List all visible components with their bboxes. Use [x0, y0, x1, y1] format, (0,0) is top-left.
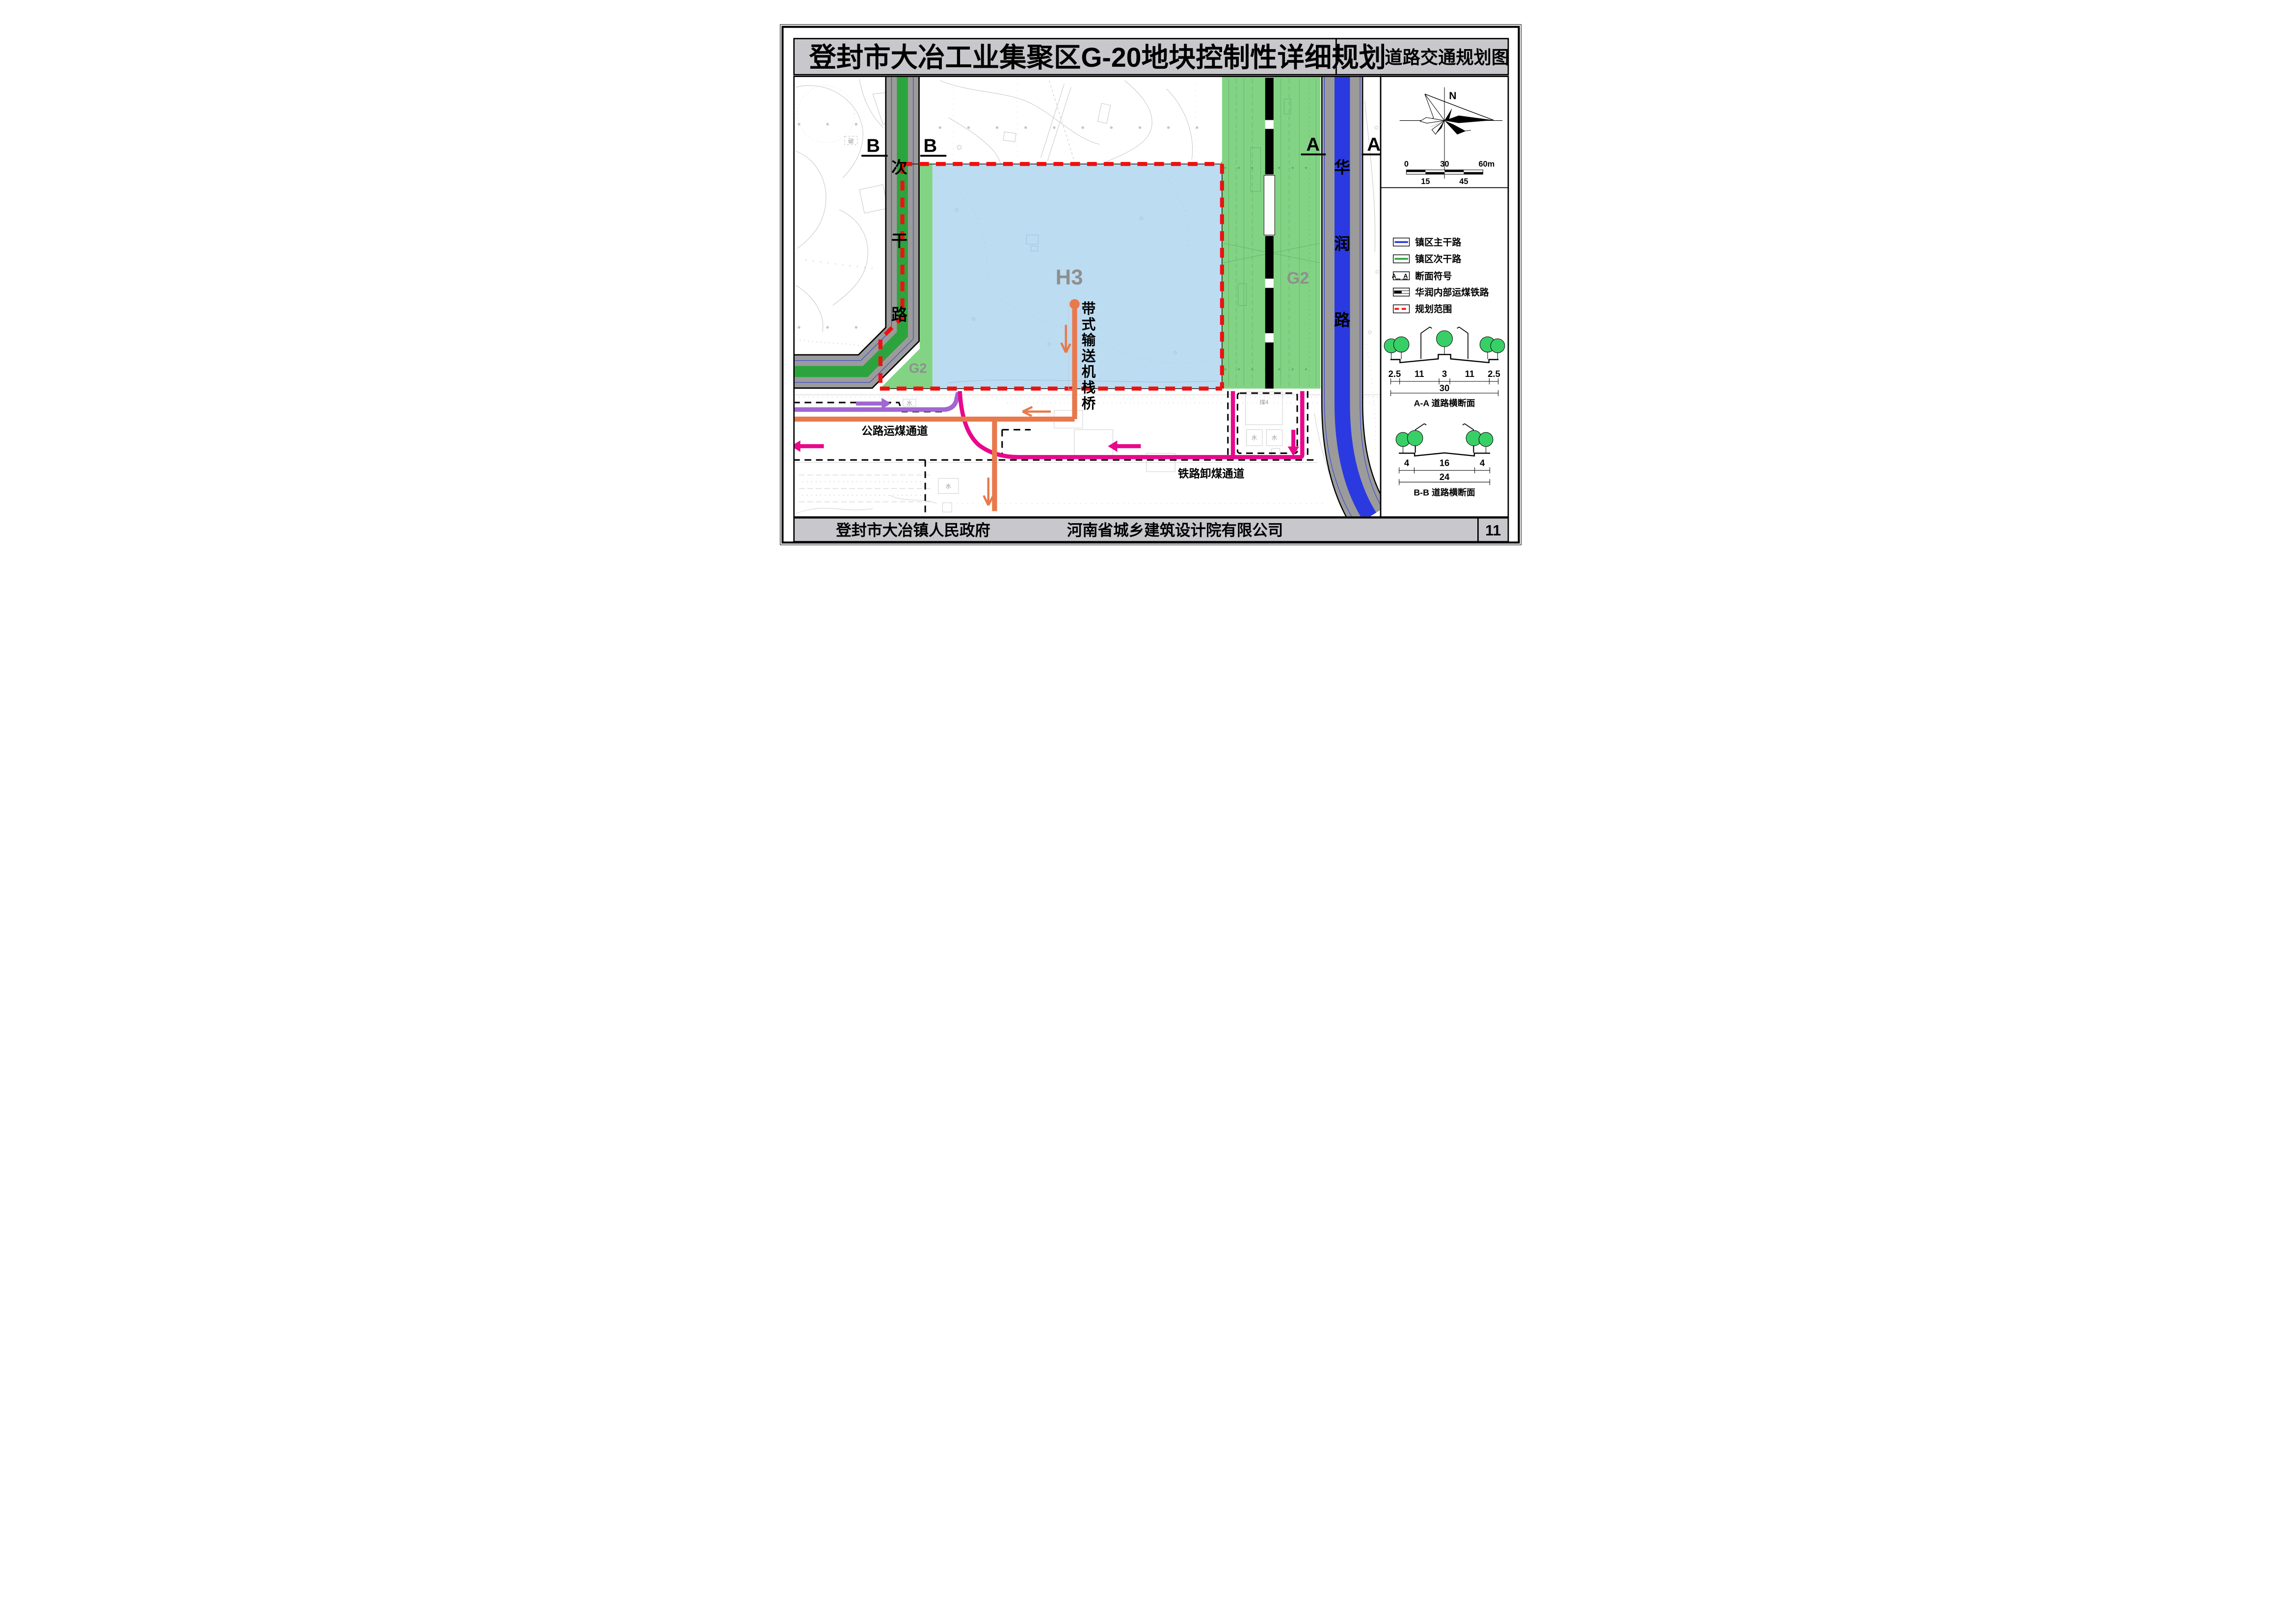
svg-text:带: 带 — [1082, 301, 1096, 317]
svg-text:断面符号: 断面符号 — [1415, 270, 1452, 281]
title-bar: 登封市大冶工业集聚区G-20地块控制性详细规划 道路交通规划图 — [794, 39, 1509, 75]
zone-label-g2-right: G2 — [1287, 269, 1309, 288]
svg-text:桥: 桥 — [1082, 396, 1096, 412]
legend-item-coal-railway: 华润内部运煤铁路 — [1393, 287, 1489, 297]
legend-item-main-road: 镇区主干路 — [1393, 237, 1462, 247]
svg-text:次: 次 — [891, 158, 908, 176]
railway-segment — [1265, 129, 1274, 175]
section-marker-b-left: B — [866, 135, 880, 157]
railway-segment — [1265, 288, 1274, 333]
svg-text:机: 机 — [1082, 365, 1096, 380]
svg-text:润: 润 — [1334, 235, 1350, 253]
coal-railway — [1264, 77, 1275, 389]
svg-text:4: 4 — [1480, 457, 1485, 468]
svg-text:输: 输 — [1082, 332, 1096, 348]
svg-text:水: 水 — [1252, 434, 1257, 441]
svg-text:11: 11 — [1415, 369, 1424, 379]
svg-text:镇区次干路: 镇区次干路 — [1415, 253, 1461, 264]
sidebar: N 0 30 — [1381, 77, 1508, 517]
svg-text:A A: A A — [1392, 273, 1411, 280]
footer-government: 登封市大冶镇人民政府 — [835, 521, 990, 539]
svg-text:破: 破 — [848, 137, 854, 144]
svg-text:水: 水 — [946, 483, 952, 490]
svg-text:11: 11 — [1465, 369, 1475, 379]
svg-text:45: 45 — [1459, 177, 1468, 186]
railway-segment — [1265, 343, 1274, 389]
plan-sheet: 登封市大冶工业集聚区G-20地块控制性详细规划 道路交通规划图 — [755, 0, 1541, 556]
rail-coal-label: 铁路卸煤通道 — [1178, 467, 1245, 480]
svg-text:水: 水 — [1272, 434, 1278, 441]
footer-design-institute: 河南省城乡建筑设计院有限公司 — [1067, 521, 1283, 539]
road-coal-label: 公路运煤通道 — [861, 425, 928, 437]
svg-text:30: 30 — [1440, 383, 1450, 393]
svg-text:栈: 栈 — [1082, 380, 1096, 396]
section-bb-caption: B-B 道路横断面 — [1414, 487, 1475, 498]
conveyor-label: 带 式 输 送 机 栈 桥 — [1082, 301, 1096, 412]
svg-text:煤4: 煤4 — [1259, 399, 1269, 406]
zone-label-g2-left: G2 — [909, 360, 927, 375]
railway-platform — [1264, 175, 1275, 235]
railway-segment — [1265, 236, 1274, 279]
svg-text:路: 路 — [891, 306, 908, 324]
railway-segment — [1265, 78, 1274, 120]
svg-text:3: 3 — [1442, 369, 1447, 379]
drawing-title: 道路交通规划图 — [1385, 47, 1509, 67]
svg-text:2.5: 2.5 — [1488, 369, 1500, 379]
svg-text:华: 华 — [1334, 158, 1350, 176]
svg-text:15: 15 — [1421, 177, 1430, 186]
svg-text:规划范围: 规划范围 — [1415, 303, 1452, 314]
svg-text:式: 式 — [1082, 317, 1096, 333]
svg-text:0: 0 — [1404, 160, 1409, 168]
compass-north-label: N — [1449, 90, 1456, 102]
zone-label-h3: H3 — [1056, 266, 1083, 290]
page-title: 登封市大冶工业集聚区G-20地块控制性详细规划 — [808, 42, 1386, 73]
legend-item-section-symbol: A A 断面符号 — [1392, 270, 1452, 281]
svg-text:华润内部运煤铁路: 华润内部运煤铁路 — [1415, 287, 1489, 297]
svg-text:路: 路 — [1334, 311, 1350, 329]
svg-text:4: 4 — [1404, 457, 1410, 468]
conveyor-head — [1069, 299, 1080, 309]
footer-bar: 登封市大冶镇人民政府 河南省城乡建筑设计院有限公司 11 — [794, 518, 1508, 542]
legend-item-secondary-road: 镇区次干路 — [1393, 253, 1462, 264]
svg-text:2.5: 2.5 — [1388, 369, 1401, 379]
svg-text:干: 干 — [891, 232, 908, 250]
svg-text:30: 30 — [1440, 160, 1449, 168]
section-aa-caption: A-A 道路横断面 — [1414, 398, 1475, 408]
svg-text:送: 送 — [1082, 348, 1096, 364]
svg-text:24: 24 — [1440, 472, 1450, 482]
legend-item-planning-boundary: 规划范围 — [1393, 303, 1452, 314]
road-traffic-plan-drawing: 登封市大冶工业集聚区G-20地块控制性详细规划 道路交通规划图 — [755, 0, 1541, 556]
section-marker-b-right: B — [924, 135, 937, 157]
svg-text:60m: 60m — [1478, 160, 1495, 168]
svg-text:镇区主干路: 镇区主干路 — [1415, 237, 1461, 247]
section-marker-a-right: A — [1367, 134, 1381, 155]
svg-text:16: 16 — [1440, 457, 1450, 468]
section-marker-a-left: A — [1306, 134, 1320, 155]
page-number: 11 — [1485, 523, 1501, 539]
svg-text:水: 水 — [907, 400, 912, 406]
